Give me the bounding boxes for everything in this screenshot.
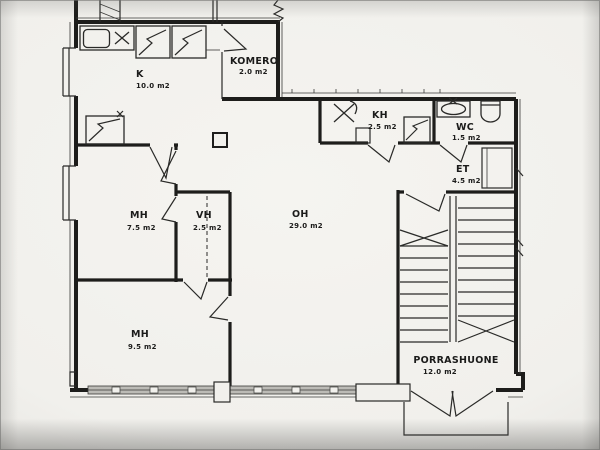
room-area: 10.0 m2 (136, 82, 170, 90)
room-area: 4.5 m2 (452, 177, 481, 185)
fridge (86, 116, 124, 144)
room-label-komero: KOMERO 2.0 m2 (230, 56, 278, 76)
floor-plan-svg: K 10.0 m2 KOMERO 2.0 m2 KH 2.5 m2 WC 1.5… (0, 0, 600, 450)
room-abbr: KOMERO (230, 56, 278, 67)
kitchen-sink-basin (84, 30, 110, 48)
window-bedroom1-left (63, 166, 76, 220)
hall-closet (482, 148, 512, 188)
room-area: 29.0 m2 (289, 222, 323, 230)
door-bedroom1-to-vh (162, 197, 176, 222)
balcony-edge-above (282, 89, 516, 93)
door-komero (224, 29, 246, 51)
wc-fixtures (437, 98, 500, 122)
kitchen-tap-icon (115, 32, 129, 44)
building-entrance-door-left (411, 391, 453, 416)
room-area: 9.5 m2 (128, 343, 157, 351)
room-area: 12.0 m2 (423, 368, 457, 376)
stair-break-left (400, 230, 448, 246)
room-label-bedroom1: MH 7.5 m2 (127, 210, 156, 232)
door-bathroom (368, 145, 395, 162)
stove-symbol (139, 30, 166, 55)
room-abbr: ET (456, 164, 470, 175)
door-wc (440, 145, 467, 162)
room-label-wc: WC 1.5 m2 (452, 122, 481, 142)
shower-icon (334, 101, 357, 122)
building-entrance-door-right (452, 391, 493, 416)
room-abbr: MH (131, 329, 149, 340)
room-abbr: WC (456, 122, 474, 133)
window-mullion-pillar (214, 382, 230, 402)
room-label-kitchen: K 10.0 m2 (136, 69, 170, 90)
room-abbr: VH (196, 210, 212, 221)
room-label-living-room: OH 29.0 m2 (289, 209, 323, 230)
room-abbr: MH (130, 210, 148, 221)
room-abbr: KH (372, 110, 388, 121)
door-living-to-bedroom2 (210, 297, 228, 320)
room-area: 2.5 m2 (193, 224, 222, 232)
stair-treads-right-flight (458, 208, 514, 316)
dishwasher-symbol (175, 30, 202, 55)
water-heater-symbol (406, 120, 428, 140)
door-vh-to-bedroom2 (184, 282, 207, 299)
window-kitchen-left (63, 48, 76, 96)
stair-break-right (458, 320, 514, 342)
entrance-side-step (356, 384, 410, 401)
room-abbr: OH (292, 209, 309, 220)
wall-break-symbol (274, 0, 283, 22)
stair-divider (450, 196, 456, 342)
room-label-entry-hall: ET 4.5 m2 (452, 164, 481, 185)
room-area: 2.0 m2 (239, 68, 268, 76)
entrance-canopy (404, 402, 508, 435)
room-area: 2.5 m2 (368, 123, 397, 131)
stair-treads-left-flight (400, 246, 448, 342)
staircase (400, 196, 514, 342)
toilet (481, 101, 500, 122)
bathroom-fixtures (334, 101, 430, 143)
apartment-front-door (406, 194, 445, 211)
room-abbr: K (136, 69, 144, 80)
scanned-floor-plan: K 10.0 m2 KOMERO 2.0 m2 KH 2.5 m2 WC 1.5… (0, 0, 600, 450)
room-area: 1.5 m2 (452, 134, 481, 142)
structural-column (213, 133, 227, 147)
room-label-bedroom2: MH 9.5 m2 (128, 329, 157, 351)
room-abbr: PORRASHUONE (413, 355, 498, 366)
door-kitchen-to-bedroom1 (150, 147, 172, 178)
room-label-stairwell: PORRASHUONE 12.0 m2 (413, 355, 498, 376)
wc-sink-basin (442, 104, 466, 115)
room-area: 7.5 m2 (127, 224, 156, 232)
fridge-symbol (89, 119, 120, 141)
room-label-bathroom: KH 2.5 m2 (368, 110, 397, 131)
